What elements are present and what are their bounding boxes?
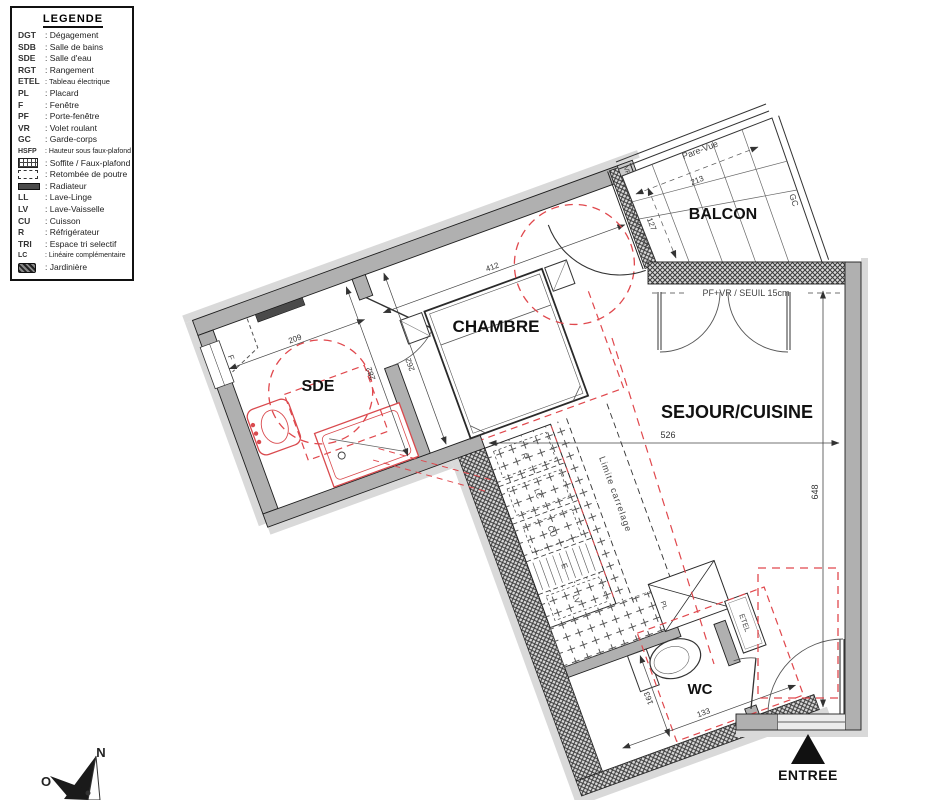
- legend-item: LVLave-Vaisselle: [18, 204, 128, 216]
- entrance-arrow-icon: [791, 734, 825, 764]
- compass-n-label: N: [96, 745, 105, 760]
- legend-item: Soffite / Faux-plafond: [18, 158, 128, 170]
- beam-dashed-icon: [18, 170, 38, 179]
- legend-item: PLPlacard: [18, 88, 128, 100]
- legend-item: PFPorte-fenêtre: [18, 111, 128, 123]
- legend-item: FFenêtre: [18, 100, 128, 112]
- entrance-label: ENTREE: [778, 767, 838, 783]
- pf-vr-seuil-label: PF+VR / SEUIL 15cm: [703, 288, 790, 298]
- legend-item: Radiateur: [18, 181, 128, 193]
- dim-wc-width: 133: [696, 706, 712, 719]
- wall-outer-band: [861, 258, 868, 734]
- room-label-balcon: BALCON: [689, 206, 757, 223]
- legend-title: LEGENDE: [18, 13, 128, 25]
- dim-sejour-width: 526: [660, 430, 675, 440]
- legend-item: LCLinéaire complémentaire: [18, 250, 128, 262]
- soffite-band: [648, 262, 845, 284]
- legend-item: RGTRangement: [18, 65, 128, 77]
- legend-item: LLLave-Linge: [18, 192, 128, 204]
- radiator-bar-icon: [18, 183, 40, 190]
- legend-item: SDBSalle de bains: [18, 42, 128, 54]
- french-door: [658, 292, 790, 352]
- wall-outer-band: [736, 730, 868, 737]
- entrance-threshold: [778, 714, 845, 730]
- room-label-sde: SDE: [302, 378, 335, 395]
- legend-item: DGTDégagement: [18, 30, 128, 42]
- balcony: Pare-Vue 213 127 GC: [616, 104, 829, 262]
- room-label-sejour: SEJOUR/CUISINE: [661, 402, 813, 422]
- compass-o-label: O: [41, 774, 51, 789]
- legend-item: VRVolet roulant: [18, 123, 128, 135]
- dim-chambre-width: 412: [485, 260, 501, 273]
- legend-item: CUCuisson: [18, 216, 128, 228]
- f-label: F: [226, 354, 236, 362]
- room-label-chambre: CHAMBRE: [453, 317, 540, 336]
- legend-item: HSFPHauteur sous faux-plafond: [18, 146, 128, 158]
- exterior-wall: [845, 262, 861, 730]
- legend-item: SDESalle d'eau: [18, 53, 128, 65]
- soffite-hatch-icon: [18, 158, 38, 168]
- dim-sejour-height: 648: [810, 484, 820, 499]
- legend-item: Retombée de poutre: [18, 169, 128, 181]
- legend: LEGENDE DGTDégagement SDBSalle de bains …: [10, 6, 134, 281]
- legend-item: Jardinière: [18, 262, 128, 274]
- legend-item: TRIEspace tri selectif: [18, 239, 128, 251]
- legend-item: RRéfrigérateur: [18, 227, 128, 239]
- legend-item: GCGarde-corps: [18, 134, 128, 146]
- legend-item: ETELTableau électrique: [18, 76, 128, 88]
- room-label-wc: WC: [688, 681, 713, 698]
- entrance-marker: ENTREE: [778, 734, 838, 783]
- compass-icon: N O: [41, 745, 106, 800]
- exterior-wall: [736, 714, 778, 730]
- planter-icon: [18, 263, 36, 273]
- bed: [424, 269, 588, 439]
- floor-plan: VR PF+VR SEUIL 15cm F: [0, 0, 944, 800]
